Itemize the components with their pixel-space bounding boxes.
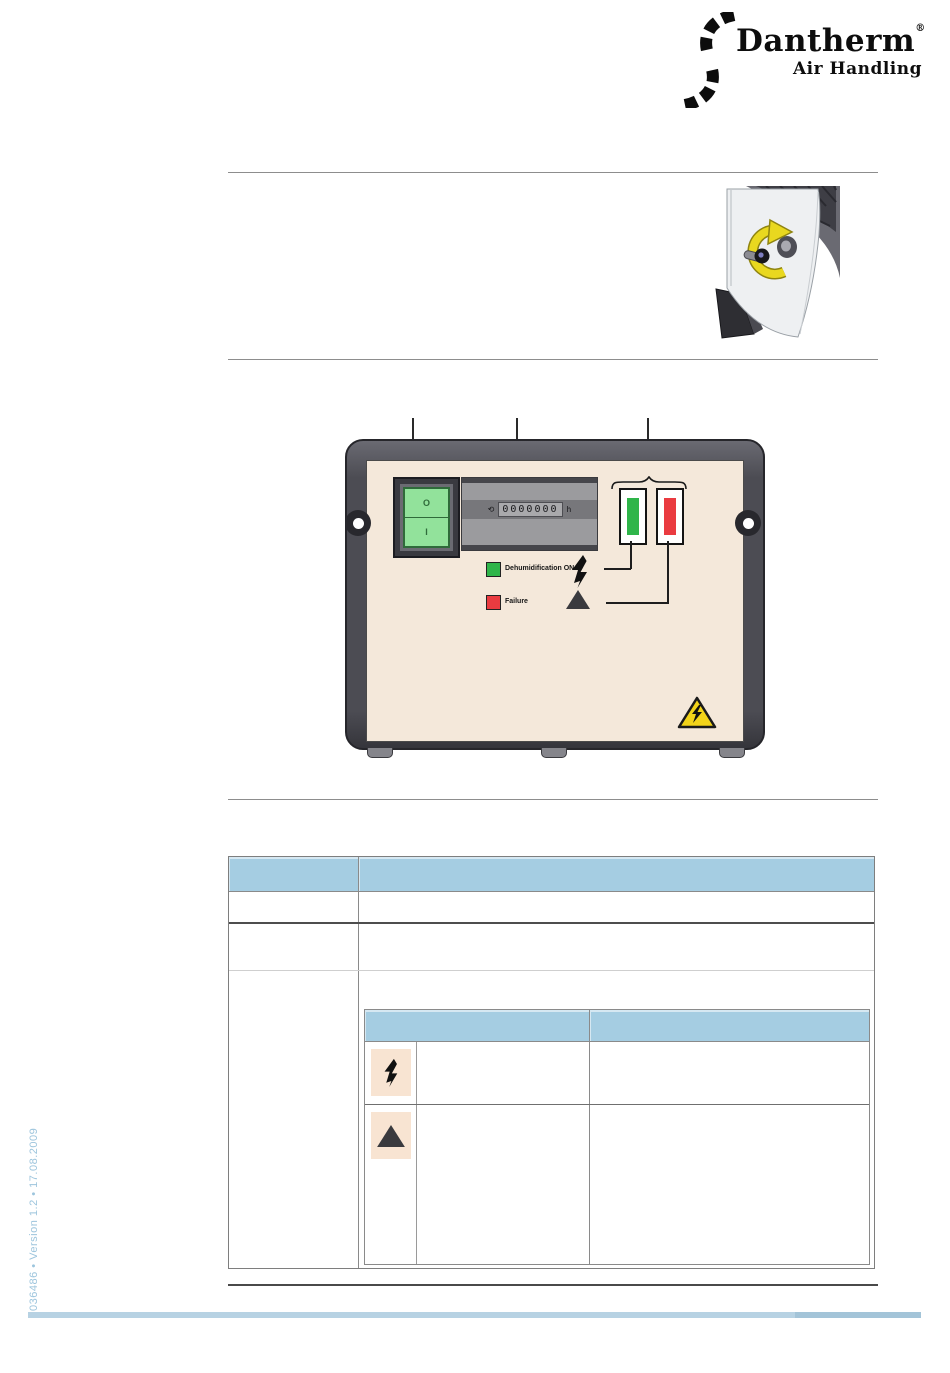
section-divider-4: [228, 1284, 878, 1286]
connector-green-vertical: [630, 541, 632, 569]
mount-tab-center: [541, 748, 567, 758]
connector-green-horizontal: [604, 568, 631, 570]
legend-red-swatch: [486, 595, 501, 610]
legend-green-swatch: [486, 562, 501, 577]
document-reference: 036486 • Version 1.2 • 17.08.2009: [28, 1093, 40, 1311]
section-divider-2: [228, 359, 878, 360]
table-row: [229, 971, 874, 1268]
triangle-icon-cell: [371, 1112, 411, 1159]
mount-tab-left: [367, 748, 393, 758]
rocker-switch: O I: [403, 487, 450, 548]
screw-left: [345, 510, 371, 536]
logo-brand: Dantherm®: [736, 26, 922, 57]
counter-left-symbol: ⟲: [488, 505, 495, 514]
registered-mark: ®: [915, 23, 925, 34]
table-header-row: [229, 857, 874, 892]
footer-bar-right-segment: [795, 1312, 921, 1318]
high-voltage-warning-sticker: [677, 696, 717, 730]
dantherm-logo: Dantherm® Air Handling: [678, 10, 922, 108]
dehumidification-lamp: [619, 488, 647, 545]
failure-lamp: [656, 488, 684, 545]
counter-unit: h: [567, 505, 572, 514]
counter-digits: 0000000: [498, 502, 562, 517]
legend-dehumidification-label: Dehumidification ON: [505, 565, 574, 572]
mount-tab-right: [719, 748, 745, 758]
high-voltage-bolt-icon: [569, 554, 589, 588]
bolt-icon-cell: [371, 1049, 411, 1096]
footer-bar: [28, 1312, 921, 1318]
manual-page: Dantherm® Air Handling: [0, 0, 950, 1373]
description-table: [228, 856, 875, 1269]
connector-red-vertical: [667, 541, 669, 604]
device-corner-illustration: [700, 186, 840, 344]
fixing-knob: [777, 236, 797, 258]
screw-right: [735, 510, 761, 536]
connector-red-horizontal: [606, 602, 668, 604]
switch-off-label: O: [405, 489, 448, 518]
section-divider-3: [228, 799, 878, 800]
switch-on-label: I: [405, 518, 448, 546]
table-row: [229, 924, 874, 971]
table-header-col1: [229, 857, 359, 891]
high-voltage-bolt-icon: [382, 1057, 399, 1088]
indicator-table: [364, 1009, 870, 1265]
table-row: [229, 892, 874, 924]
indicator-row-bolt: [365, 1042, 869, 1105]
indicator-row-triangle: [365, 1105, 869, 1264]
legend-failure-label: Failure: [505, 598, 528, 605]
logo-subtitle: Air Handling: [736, 61, 922, 78]
hour-counter: ⟲ 0000000 h: [462, 478, 597, 550]
indicator-table-header: [365, 1010, 869, 1042]
warning-triangle-icon: [566, 590, 590, 609]
warning-triangle-icon: [377, 1125, 405, 1147]
table-header-col2: [359, 857, 874, 891]
control-panel-figure: O I ⟲ 0000000 h D: [345, 418, 765, 768]
dantherm-swirl-icon: [678, 12, 740, 108]
main-switch: O I: [393, 477, 460, 558]
section-divider-1: [228, 172, 878, 173]
